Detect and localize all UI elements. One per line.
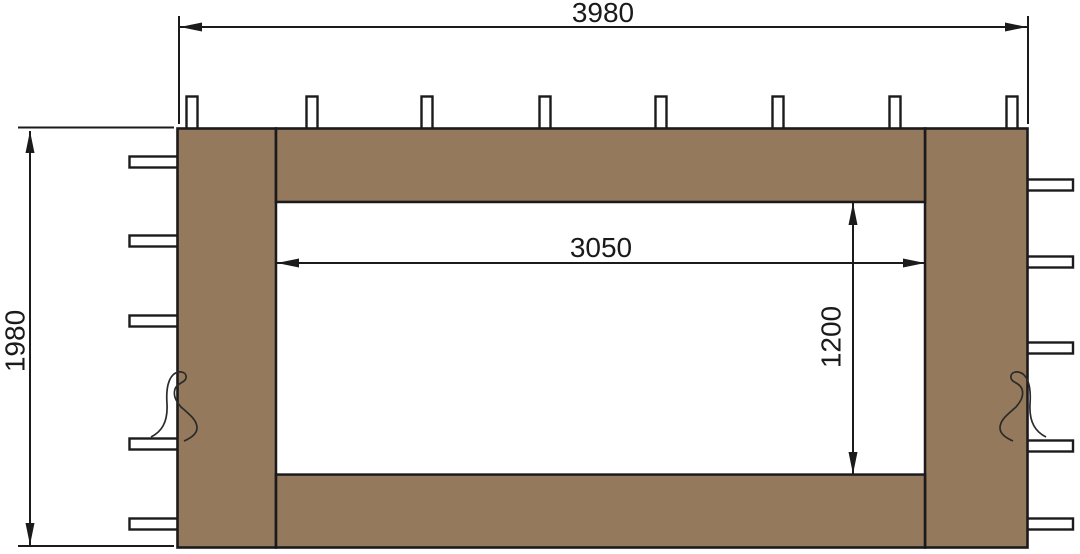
sidewall-panel [178, 129, 1028, 548]
attachment-tab-icon [1026, 519, 1073, 530]
panel-right-band [925, 129, 1028, 548]
dim-inner-height-label: 1200 [816, 306, 847, 368]
panel-left-band [178, 129, 277, 548]
arrowhead-right-icon [1005, 23, 1027, 32]
panel-bottom-band [276, 475, 925, 548]
attachment-tab-icon [422, 97, 433, 131]
attachment-tab-icon [130, 519, 179, 530]
dim-outer-height-label: 1980 [0, 310, 31, 372]
attachment-tab-icon [890, 97, 901, 131]
attachment-tab-icon [773, 97, 784, 131]
right-attachment-tabs [1026, 180, 1073, 530]
attachment-tab-icon [1007, 97, 1018, 131]
attachment-tab-icon [130, 316, 179, 327]
arrowhead-left-icon [180, 23, 202, 32]
attachment-tab-icon [130, 236, 179, 247]
attachment-tab-icon [540, 97, 551, 131]
attachment-tab-icon [307, 97, 318, 131]
attachment-tab-icon [187, 97, 198, 131]
top-attachment-tabs [187, 97, 1018, 131]
panel-top-band [276, 129, 925, 203]
arrowhead-up-icon [26, 131, 35, 153]
attachment-tab-icon [1026, 257, 1073, 268]
attachment-tab-icon [656, 97, 667, 131]
attachment-tab-icon [1026, 441, 1073, 452]
gazebo-sidewall-drawing: 3980 1980 3050 1200 [0, 0, 1080, 554]
drawing-canvas: 3980 1980 3050 1200 [0, 0, 1080, 554]
dim-inner-width-label: 3050 [570, 232, 632, 263]
attachment-tab-icon [130, 439, 179, 450]
dim-outer-height: 1980 [0, 128, 174, 547]
attachment-tab-icon [130, 157, 179, 168]
left-attachment-tabs [130, 157, 179, 530]
arrowhead-down-icon [26, 523, 35, 545]
attachment-tab-icon [1026, 343, 1073, 354]
attachment-tab-icon [1026, 180, 1073, 191]
dim-outer-width-label: 3980 [572, 0, 634, 28]
